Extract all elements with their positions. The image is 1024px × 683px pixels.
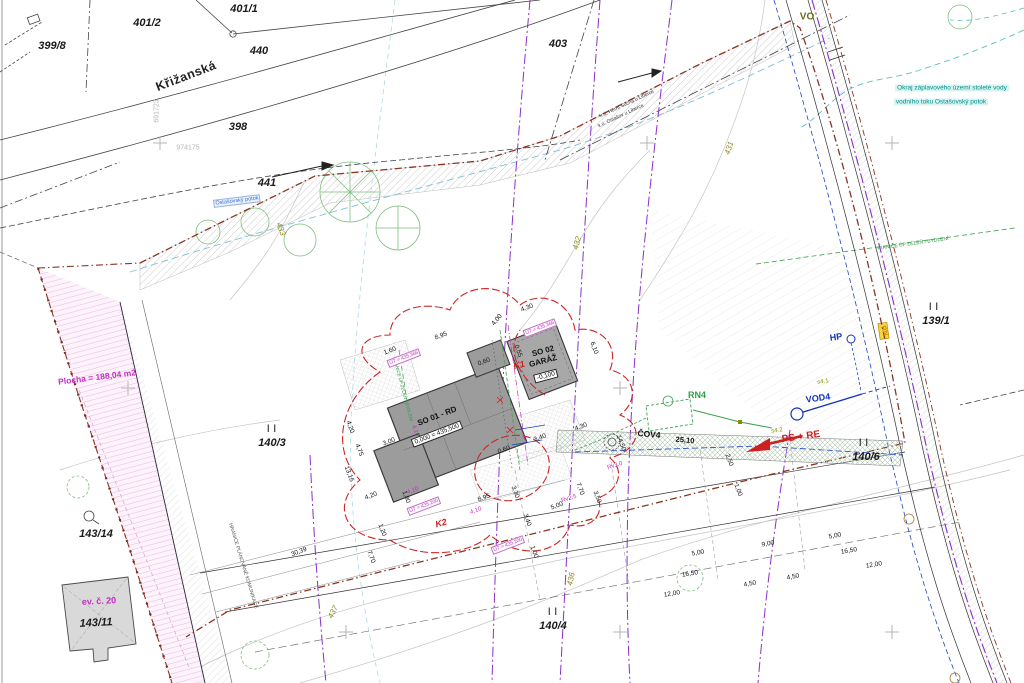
plan-linework — [0, 0, 1024, 683]
slope-hatch-band — [140, 21, 898, 450]
planned-road-lines — [190, 440, 960, 652]
site-plan-drawing: 399/8401/2401/1440398441403139/1140/3140… — [0, 0, 1024, 683]
stream-lines — [130, 0, 1024, 683]
